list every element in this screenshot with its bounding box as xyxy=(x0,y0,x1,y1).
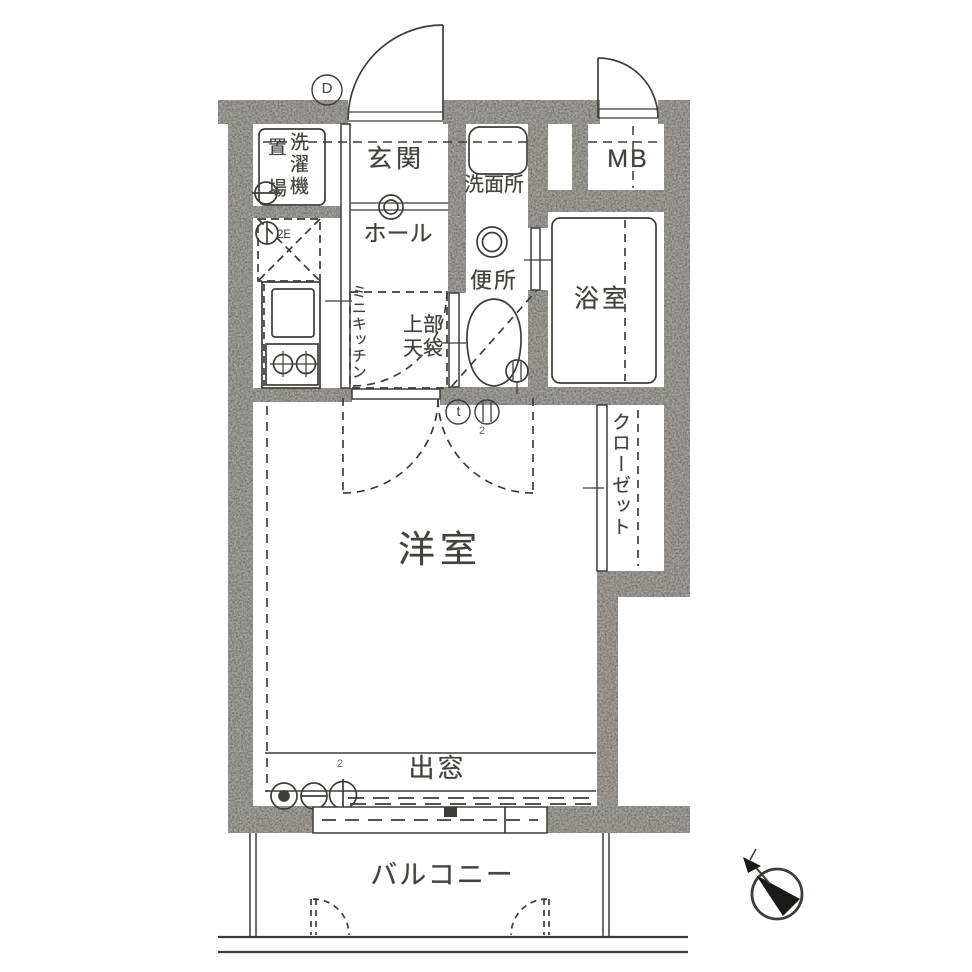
room-label-entrance: 玄関 xyxy=(348,146,444,172)
room-label-closet: クローゼット xyxy=(609,412,629,538)
room-label-bay-window: 出窓 xyxy=(390,755,485,782)
outlet-bar-symbol xyxy=(301,783,327,809)
wall-bottom-right xyxy=(547,806,690,833)
entrance-step xyxy=(350,195,448,219)
room-label-hall: ホール xyxy=(348,221,448,245)
step-circle xyxy=(379,195,403,219)
outlet-dot-symbol xyxy=(271,783,297,809)
room-label-laundry-left: 置場 xyxy=(265,137,285,219)
wall-right xyxy=(664,100,690,597)
wall-bottom-left xyxy=(228,806,313,833)
mb-door-arc xyxy=(598,58,658,118)
wall-top-mid xyxy=(443,100,600,124)
wall-left xyxy=(228,100,253,833)
wall-bath-top xyxy=(528,190,664,212)
compass-icon xyxy=(743,849,802,919)
wall-mb-left xyxy=(572,124,588,190)
wall-toilet-room xyxy=(440,387,664,405)
floor-plan: 玄関 洗面所 MB ホール 便所 浴室 洗濯機 置場 ミニキッチン 上部 天袋 … xyxy=(0,0,972,972)
outlet-count-hall: 2 xyxy=(479,426,485,438)
door-mark-label: D xyxy=(319,81,335,97)
wash-basin xyxy=(469,127,527,174)
room-label-upper-cabinet-2: 天袋 xyxy=(394,339,452,360)
thermostat-mark-label: t xyxy=(452,404,465,419)
wall-lower-right xyxy=(597,571,618,833)
floor-plan-drawing xyxy=(0,0,972,972)
burner-right xyxy=(293,351,319,377)
room-label-western-room: 洋室 xyxy=(375,531,505,570)
hall-room-opening xyxy=(352,389,440,399)
kitchen-sink xyxy=(272,289,314,337)
balcony-rails xyxy=(218,833,688,952)
room-label-balcony: バルコニー xyxy=(330,861,555,889)
room-label-upper-cabinet-1: 上部 xyxy=(394,315,452,336)
balcony-partition-arcs xyxy=(311,899,549,935)
room-label-laundry-right: 洗濯機 xyxy=(287,132,307,198)
refrigerator-mark-label: 2E xyxy=(277,229,291,241)
room-label-meter-box: MB xyxy=(592,146,664,172)
kitchen-counter xyxy=(262,282,352,388)
bay-window-box xyxy=(313,807,547,833)
burner-left xyxy=(270,351,296,377)
wall-washroom-bath-lower xyxy=(528,290,548,390)
room-label-bathroom: 浴室 xyxy=(550,286,654,312)
wall-entrance-washroom xyxy=(448,124,466,293)
entrance-door-arc xyxy=(348,25,443,121)
drain-circle xyxy=(477,227,507,257)
wall-kitchen-room xyxy=(253,388,352,402)
room-label-mini-kitchen: ミニキッチン xyxy=(350,284,366,380)
outlet-count-window: 2 xyxy=(337,759,343,771)
double-door-arcs xyxy=(343,398,533,493)
room-label-washroom: 洗面所 xyxy=(450,175,538,196)
room-label-toilet: 便所 xyxy=(449,269,539,292)
